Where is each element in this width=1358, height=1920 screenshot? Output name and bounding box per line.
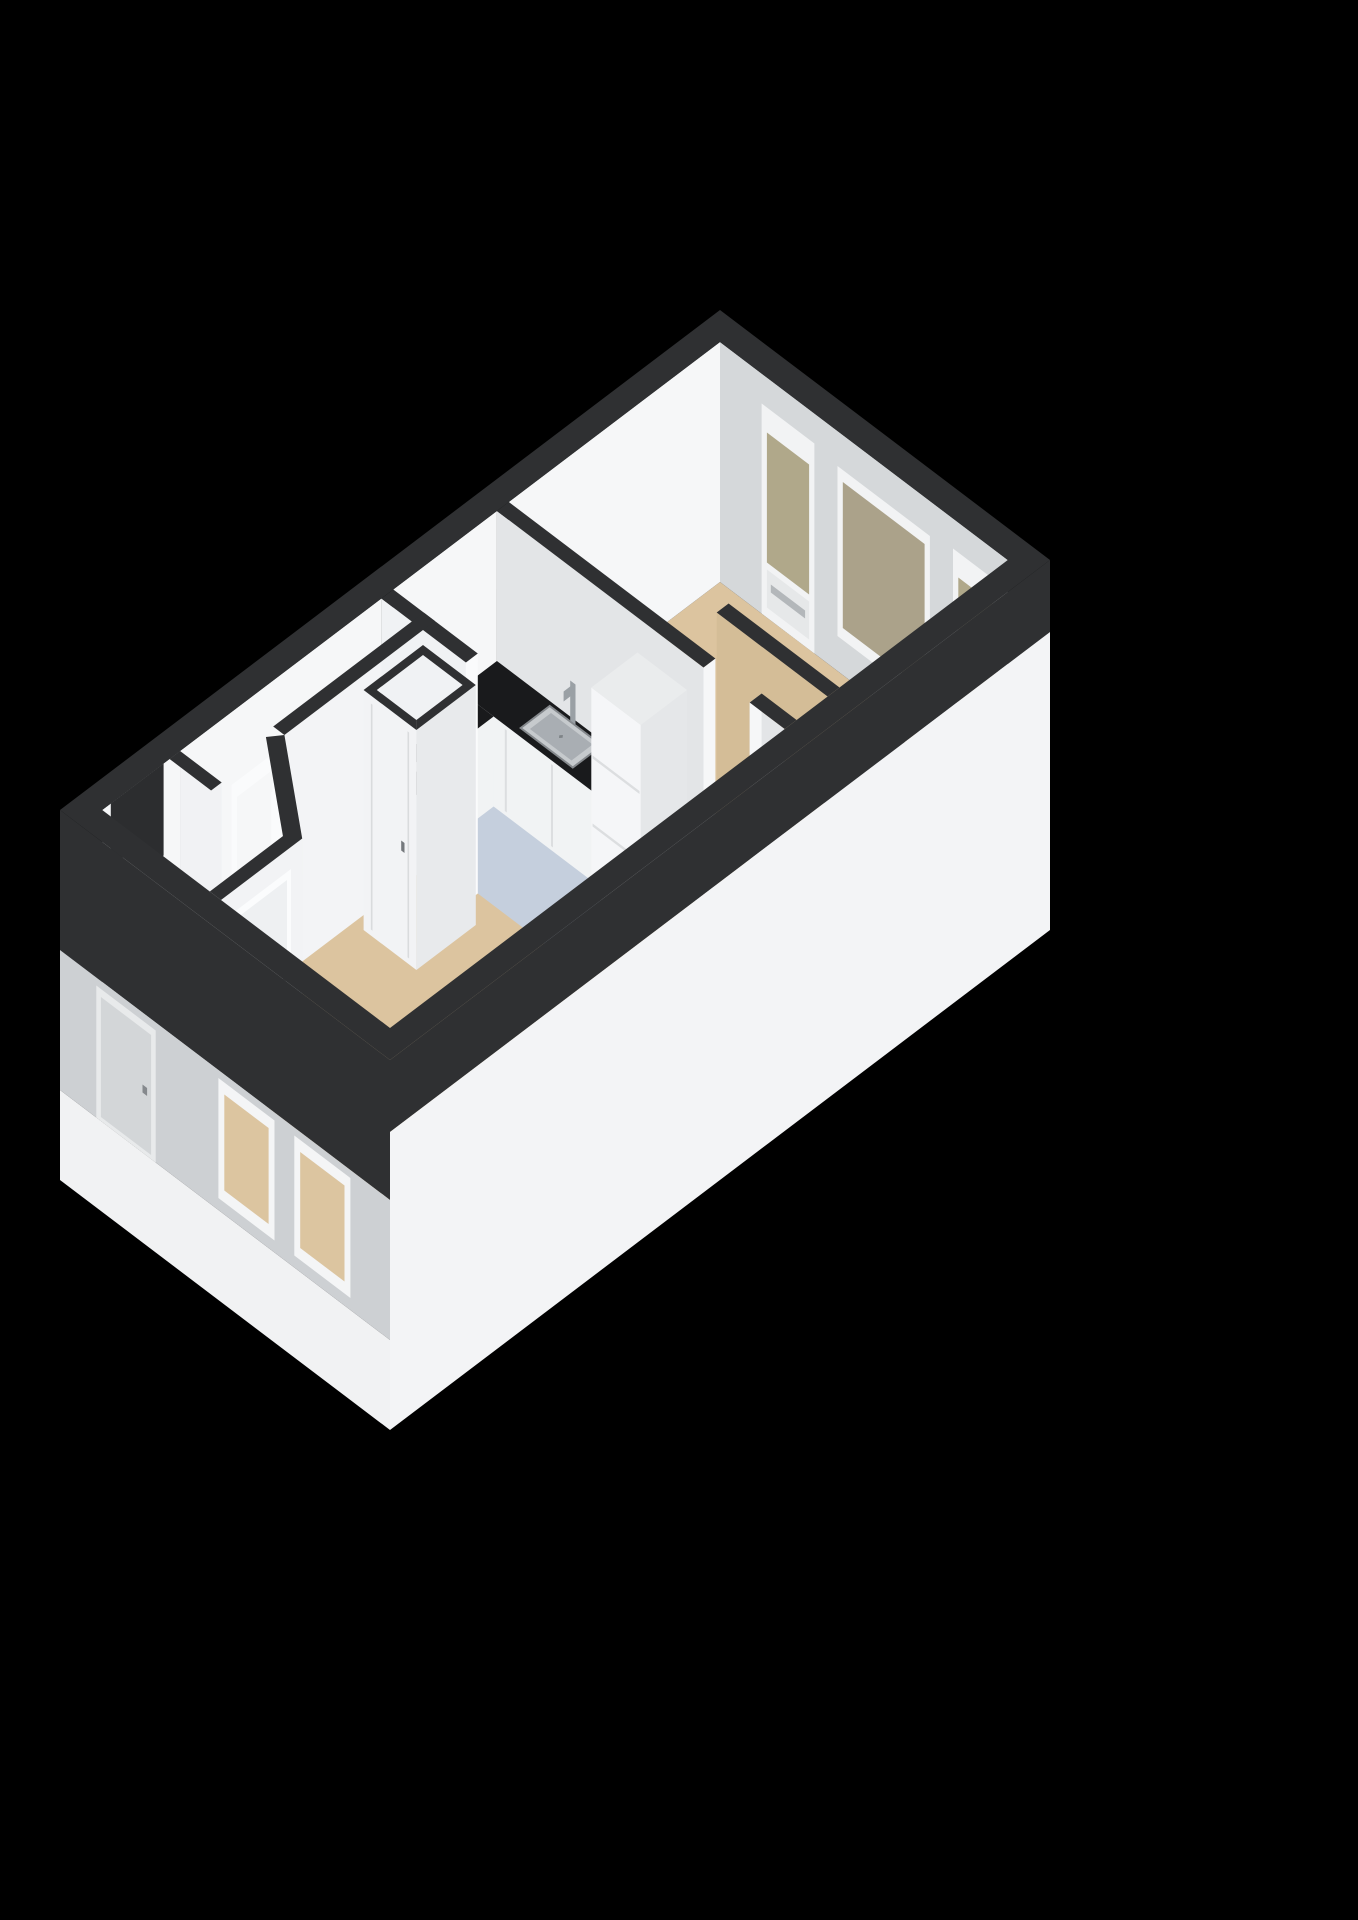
floorplan-3d-canvas xyxy=(0,0,1358,1920)
kitchen-sink-drain xyxy=(559,735,563,738)
kitchen-counter-seam-2 xyxy=(551,764,553,848)
closet-side xyxy=(416,685,475,970)
closet-door-seam-1 xyxy=(371,704,373,931)
kitchen-counter-seam-1 xyxy=(505,729,507,813)
closet-door-seam-2 xyxy=(408,731,410,958)
floorplan-stage xyxy=(0,0,1358,1920)
floorplan-3d-view[interactable] xyxy=(0,0,1358,1920)
